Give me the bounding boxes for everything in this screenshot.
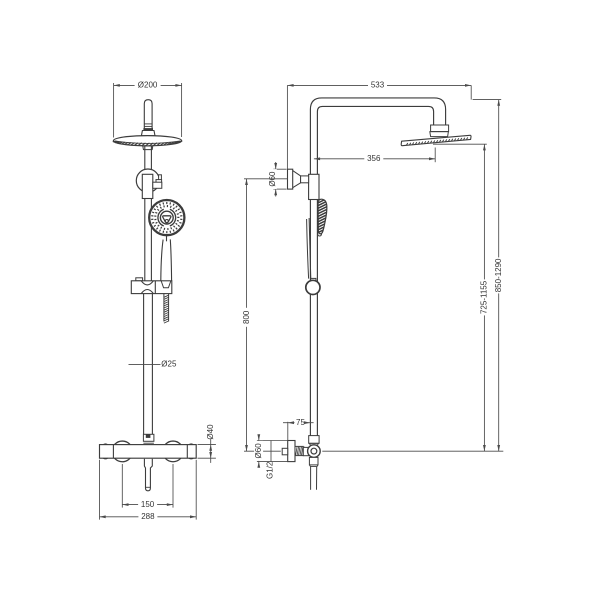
svg-text:725-1155: 725-1155 [480, 280, 489, 314]
svg-text:Ø40: Ø40 [206, 424, 215, 440]
svg-text:288: 288 [141, 512, 155, 521]
svg-text:Ø60: Ø60 [254, 443, 263, 459]
svg-text:Ø25: Ø25 [161, 360, 177, 369]
svg-text:G1/2: G1/2 [266, 461, 275, 479]
svg-text:533: 533 [371, 81, 385, 90]
svg-text:150: 150 [141, 500, 155, 509]
svg-text:800: 800 [242, 310, 251, 324]
svg-text:356: 356 [367, 154, 381, 163]
svg-text:850-1290: 850-1290 [494, 258, 503, 292]
svg-text:Ø200: Ø200 [138, 81, 158, 90]
